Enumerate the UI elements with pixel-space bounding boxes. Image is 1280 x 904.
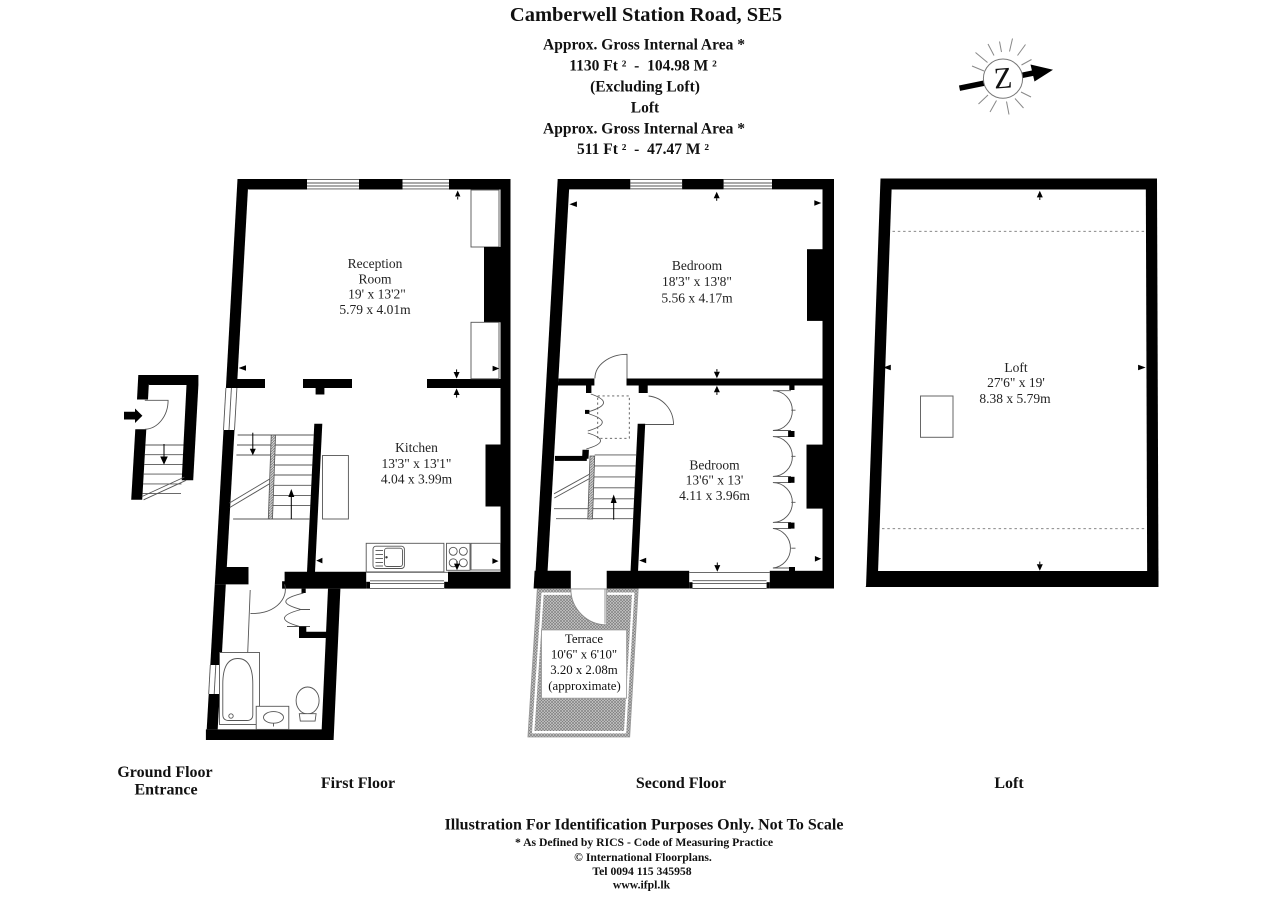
svg-text:13'6" x 13': 13'6" x 13' bbox=[686, 472, 744, 487]
svg-text:© International Floorplans.: © International Floorplans. bbox=[574, 851, 712, 864]
svg-text:Loft: Loft bbox=[631, 100, 660, 117]
svg-text:Terrace: Terrace bbox=[565, 632, 603, 646]
svg-text:www.ifpl.lk: www.ifpl.lk bbox=[613, 879, 671, 892]
svg-text:Loft: Loft bbox=[994, 775, 1024, 792]
svg-text:Camberwell Station Road, SE5: Camberwell Station Road, SE5 bbox=[510, 4, 782, 26]
svg-text:19' x 13'2": 19' x 13'2" bbox=[348, 287, 406, 302]
svg-text:(Excluding Loft): (Excluding Loft) bbox=[590, 79, 700, 96]
svg-text:Tel 0094 115 345958: Tel 0094 115 345958 bbox=[592, 865, 691, 878]
svg-text:Reception: Reception bbox=[348, 256, 403, 271]
svg-text:5.79 x 4.01m: 5.79 x 4.01m bbox=[339, 302, 411, 317]
svg-text:27'6" x 19': 27'6" x 19' bbox=[987, 375, 1045, 390]
svg-text:Kitchen: Kitchen bbox=[395, 440, 438, 455]
svg-text:4.04 x 3.99m: 4.04 x 3.99m bbox=[381, 472, 453, 487]
svg-text:Illustration For Identificatio: Illustration For Identification Purposes… bbox=[445, 817, 844, 834]
svg-text:Loft: Loft bbox=[1004, 360, 1027, 375]
svg-text:Ground Floor: Ground Floor bbox=[117, 764, 212, 781]
svg-text:Bedroom: Bedroom bbox=[672, 258, 723, 273]
svg-text:18'3" x 13'8": 18'3" x 13'8" bbox=[662, 274, 732, 289]
svg-text:1130 Ft ² - 104.98 M ²: 1130 Ft ² - 104.98 M ² bbox=[569, 58, 717, 75]
svg-text:(approximate): (approximate) bbox=[548, 679, 620, 693]
svg-text:* As Defined by RICS - Code of: * As Defined by RICS - Code of Measuring… bbox=[515, 836, 773, 849]
svg-text:Second Floor: Second Floor bbox=[636, 775, 726, 792]
svg-text:10'6" x 6'10": 10'6" x 6'10" bbox=[551, 648, 617, 662]
svg-text:8.38 x 5.79m: 8.38 x 5.79m bbox=[979, 391, 1051, 406]
svg-text:Entrance: Entrance bbox=[134, 782, 197, 799]
svg-text:3.20 x 2.08m: 3.20 x 2.08m bbox=[550, 663, 618, 677]
svg-text:Approx. Gross Internal Area *: Approx. Gross Internal Area * bbox=[543, 121, 745, 138]
svg-text:Bedroom: Bedroom bbox=[689, 458, 740, 473]
svg-text:4.11 x 3.96m: 4.11 x 3.96m bbox=[679, 488, 750, 503]
svg-text:Approx. Gross Internal Area *: Approx. Gross Internal Area * bbox=[543, 37, 745, 54]
svg-text:First Floor: First Floor bbox=[321, 775, 395, 792]
svg-text:5.56 x 4.17m: 5.56 x 4.17m bbox=[661, 291, 733, 306]
svg-text:Room: Room bbox=[358, 272, 392, 287]
svg-text:13'3" x 13'1": 13'3" x 13'1" bbox=[382, 456, 452, 471]
svg-text:511 Ft ² - 47.47 M ²: 511 Ft ² - 47.47 M ² bbox=[577, 141, 709, 158]
svg-text:Z: Z bbox=[993, 61, 1014, 95]
